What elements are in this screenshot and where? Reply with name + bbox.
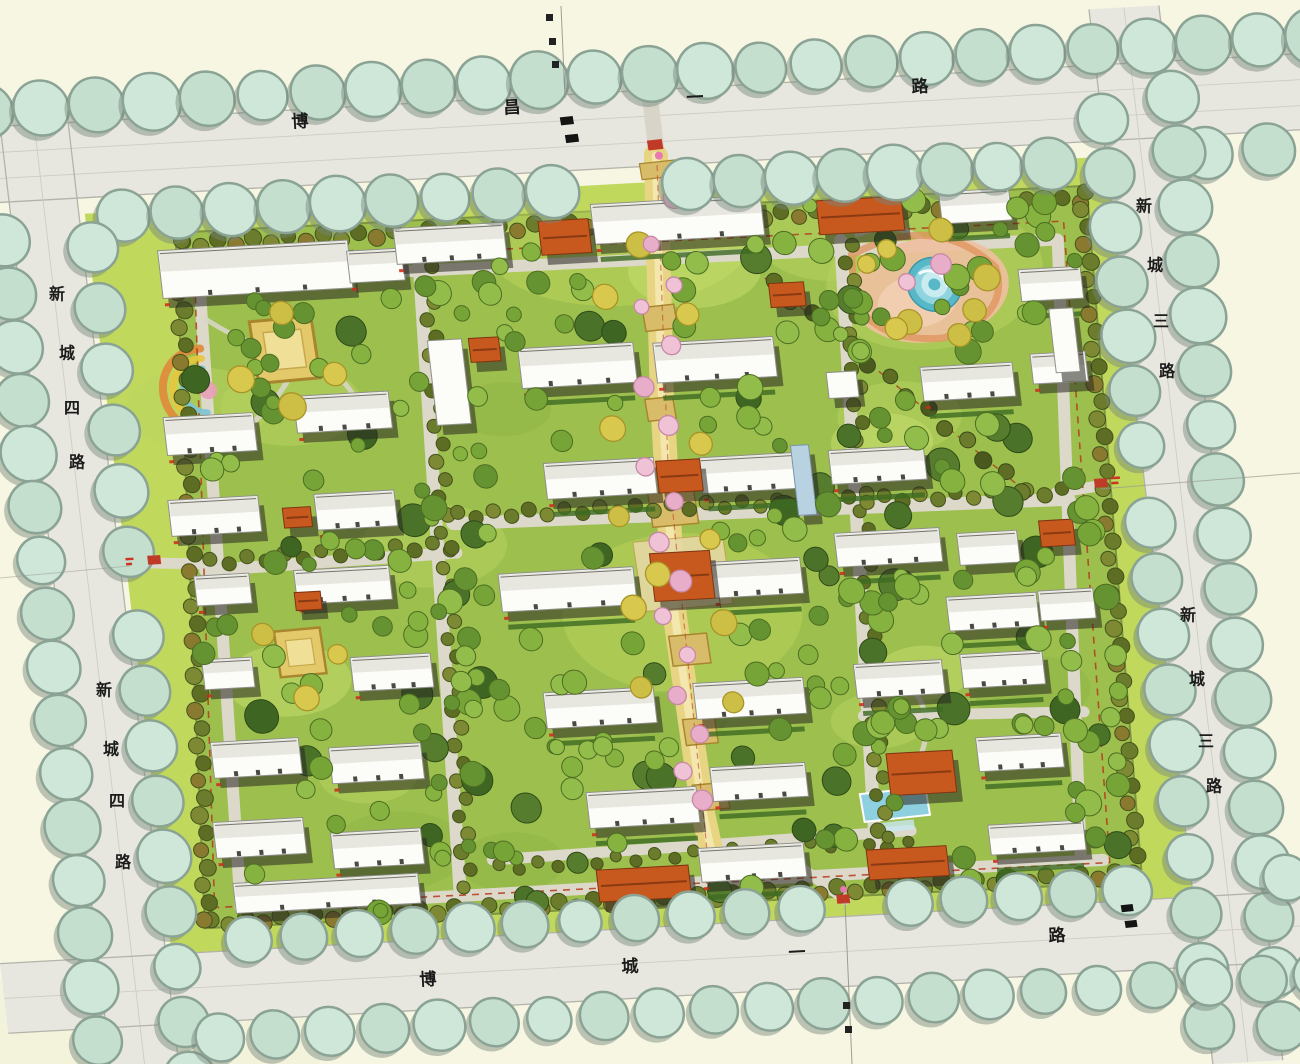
gate-note bbox=[126, 563, 132, 566]
road-label-char: 路 bbox=[911, 76, 930, 98]
road-label-char: 路 bbox=[69, 453, 86, 472]
unit-label-mark bbox=[334, 788, 339, 791]
unit-label-mark bbox=[834, 489, 839, 492]
survey-tick bbox=[546, 14, 553, 21]
southwest-plaza-inner bbox=[285, 638, 315, 666]
south-gate-marker bbox=[836, 894, 850, 904]
unit-label-mark bbox=[715, 806, 720, 809]
master-plan-figure: 博昌一路新城四路新城四路新城三路新城三路博城一路 博昌一路 · 新城四路 · 新… bbox=[0, 0, 1300, 1064]
road-label-char: 三 bbox=[1153, 312, 1169, 331]
road-label-char: 昌 bbox=[503, 98, 521, 119]
road-label-char: 一 bbox=[788, 943, 806, 964]
unit-label-mark bbox=[840, 572, 845, 575]
unit-label-mark bbox=[169, 460, 174, 463]
road-label-char: 博 bbox=[291, 111, 309, 133]
unit-label-mark bbox=[549, 733, 554, 736]
unit-label-mark bbox=[981, 776, 986, 779]
survey-tick bbox=[549, 38, 556, 45]
unit-label-mark bbox=[597, 249, 602, 252]
unit-label-mark bbox=[174, 541, 179, 544]
screenshot-root: { "meta": { "roads_text": "博昌一路 · 新城四路 ·… bbox=[0, 0, 1300, 1064]
gate-note bbox=[1111, 481, 1118, 484]
road-label-char: 城 bbox=[1189, 670, 1205, 689]
gate-note bbox=[1111, 476, 1120, 479]
unit-label-mark bbox=[1035, 389, 1040, 392]
road-marking bbox=[560, 116, 574, 125]
road-label-char: 路 bbox=[1159, 362, 1176, 381]
unit-label-mark bbox=[549, 504, 554, 507]
road-label-char: 四 bbox=[64, 399, 80, 418]
road-label-char: 新 bbox=[1180, 606, 1196, 625]
unit-label-mark bbox=[216, 783, 221, 786]
survey-tick bbox=[552, 61, 559, 68]
road-label-char: 新 bbox=[49, 285, 65, 304]
survey-tick bbox=[843, 1002, 850, 1009]
road-label-char: 新 bbox=[1136, 197, 1152, 216]
unit-label-mark bbox=[704, 887, 709, 890]
unit-label-mark bbox=[965, 693, 970, 696]
unit-label-mark bbox=[218, 863, 223, 866]
road-label-char: 四 bbox=[109, 792, 125, 811]
residential-building bbox=[826, 371, 859, 399]
unit-label-mark bbox=[859, 703, 864, 706]
unit-label-mark bbox=[207, 694, 212, 697]
road-label-char: 博 bbox=[419, 969, 437, 991]
site-plan-canvas: 博昌一路新城四路新城四路新城三路新城三路博城一路 bbox=[0, 0, 1300, 1064]
tilted-map-layer bbox=[0, 0, 1300, 1064]
road-label-char: 城 bbox=[621, 957, 639, 978]
road-label-char: 城 bbox=[1147, 256, 1163, 275]
unit-label-mark bbox=[336, 873, 341, 876]
unit-label-mark bbox=[399, 269, 404, 272]
unit-label-mark bbox=[926, 406, 931, 409]
road-label-char: 新 bbox=[96, 681, 112, 700]
road-label-char: 城 bbox=[59, 344, 75, 363]
road-label-char: 三 bbox=[1198, 732, 1214, 751]
unit-label-mark bbox=[199, 611, 204, 614]
unit-label-mark bbox=[356, 696, 361, 699]
unit-label-mark bbox=[993, 860, 998, 863]
road-marking bbox=[1121, 904, 1134, 912]
north-gate-marker bbox=[647, 139, 664, 151]
unit-label-mark bbox=[592, 833, 597, 836]
gate-note bbox=[125, 558, 133, 561]
road-marking bbox=[1124, 920, 1137, 928]
west-gate-marker bbox=[147, 555, 161, 565]
road-marking bbox=[565, 134, 579, 143]
unit-label-mark bbox=[299, 438, 304, 441]
road-label-char: 路 bbox=[115, 853, 132, 872]
unit-label-mark bbox=[659, 388, 664, 391]
unit-label-mark bbox=[165, 303, 170, 306]
east-gate-marker bbox=[1094, 478, 1108, 488]
survey-tick bbox=[845, 1026, 852, 1033]
road-label-char: 城 bbox=[103, 740, 119, 759]
road-label-char: 路 bbox=[1048, 925, 1067, 947]
road-label-char: 一 bbox=[686, 88, 704, 109]
unit-label-mark bbox=[352, 288, 357, 291]
unit-label-mark bbox=[504, 617, 509, 620]
road-label-char: 路 bbox=[1206, 777, 1223, 796]
